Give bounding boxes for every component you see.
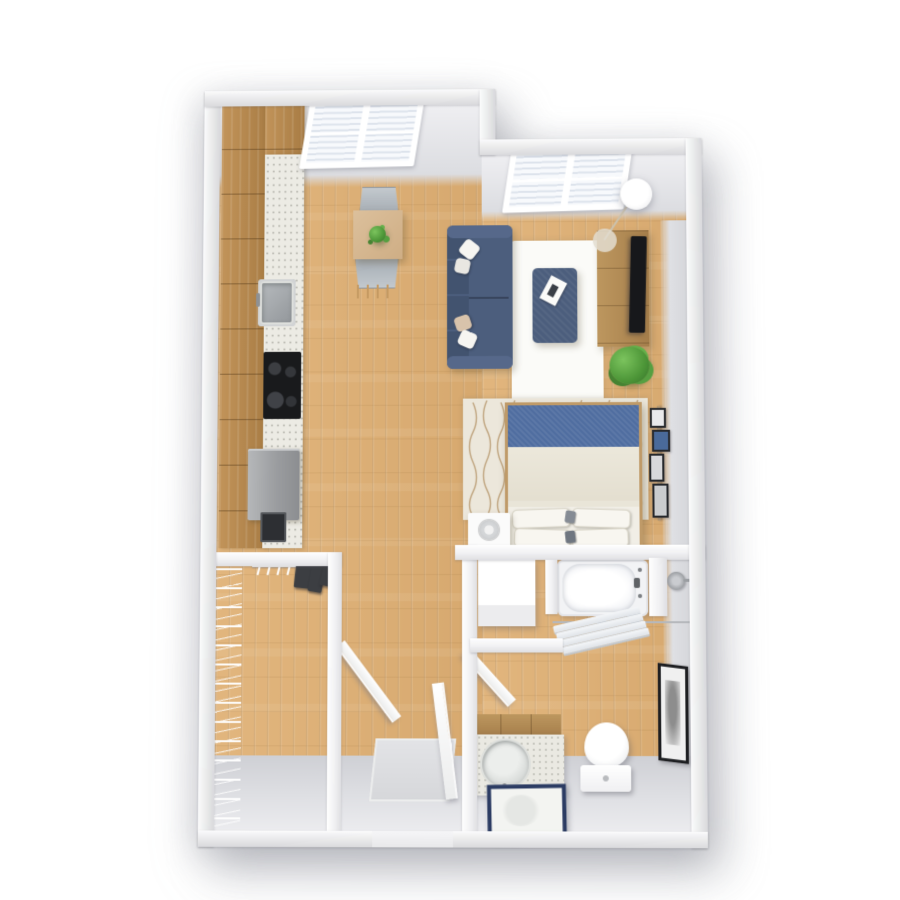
tv — [629, 236, 647, 333]
sink-faucet — [256, 293, 260, 307]
sofa-arm — [447, 225, 512, 238]
closet-wire-shelves — [212, 568, 242, 828]
speaker-ring — [478, 519, 500, 541]
mirror-reflection — [501, 794, 541, 827]
vanity-sink — [482, 741, 529, 788]
sofa-seat-seam — [469, 297, 509, 299]
dresser — [478, 560, 535, 626]
accent-pillow — [564, 510, 576, 523]
bed-duvet — [508, 447, 639, 501]
tub-east-wall — [649, 558, 668, 616]
window-sash — [507, 147, 571, 209]
cooktop — [263, 352, 301, 419]
exterior-wall-north-right — [480, 138, 702, 155]
entry-threshold — [372, 831, 453, 848]
refrigerator — [248, 449, 300, 521]
exterior-wall-north-left — [205, 89, 496, 107]
bed-blue-throw — [508, 405, 639, 447]
accent-pillow — [565, 530, 576, 543]
table-plant — [369, 226, 386, 243]
chair-legs — [357, 285, 393, 299]
floor-lamp — [620, 178, 652, 209]
floor-plan-canvas — [0, 0, 900, 900]
sofa — [447, 225, 513, 369]
closet-north-wall — [202, 552, 342, 566]
picture-frame — [650, 408, 666, 428]
toilet-bowl — [584, 722, 629, 767]
tub-faucet — [634, 578, 640, 588]
window-sash — [304, 98, 367, 165]
closet-east-wall — [327, 552, 342, 831]
oven-front — [260, 512, 286, 542]
tub-handle — [638, 594, 642, 598]
kitchen-upper-cabinet — [265, 104, 305, 157]
towel-rack — [553, 614, 652, 644]
nightstand — [468, 513, 510, 547]
bathroom-north-wall — [470, 638, 563, 652]
picture-frame — [652, 430, 670, 452]
toilet-tank — [580, 765, 631, 792]
window-sash — [358, 96, 421, 163]
bed-pillow — [572, 508, 631, 529]
lamp-base — [593, 228, 617, 252]
picture-frame — [652, 484, 668, 518]
tub-west-wall — [545, 560, 557, 614]
tub-basin — [562, 564, 636, 612]
bathroom-west-wall — [462, 545, 477, 831]
vanity-backsplash — [470, 714, 561, 736]
picture-frame — [649, 454, 664, 482]
art-photo — [665, 680, 680, 746]
bathroom-wall-art — [658, 663, 689, 764]
kitchen-sink — [258, 279, 296, 326]
bed — [505, 402, 643, 554]
gallery-ledge — [648, 406, 669, 521]
sofa-arm — [447, 356, 513, 369]
bed-pillow — [512, 508, 571, 529]
living-plant — [609, 346, 649, 384]
tub-handle — [638, 568, 642, 572]
bedroom-half-wall — [455, 545, 705, 560]
apartment-floor-plan — [196, 82, 714, 853]
